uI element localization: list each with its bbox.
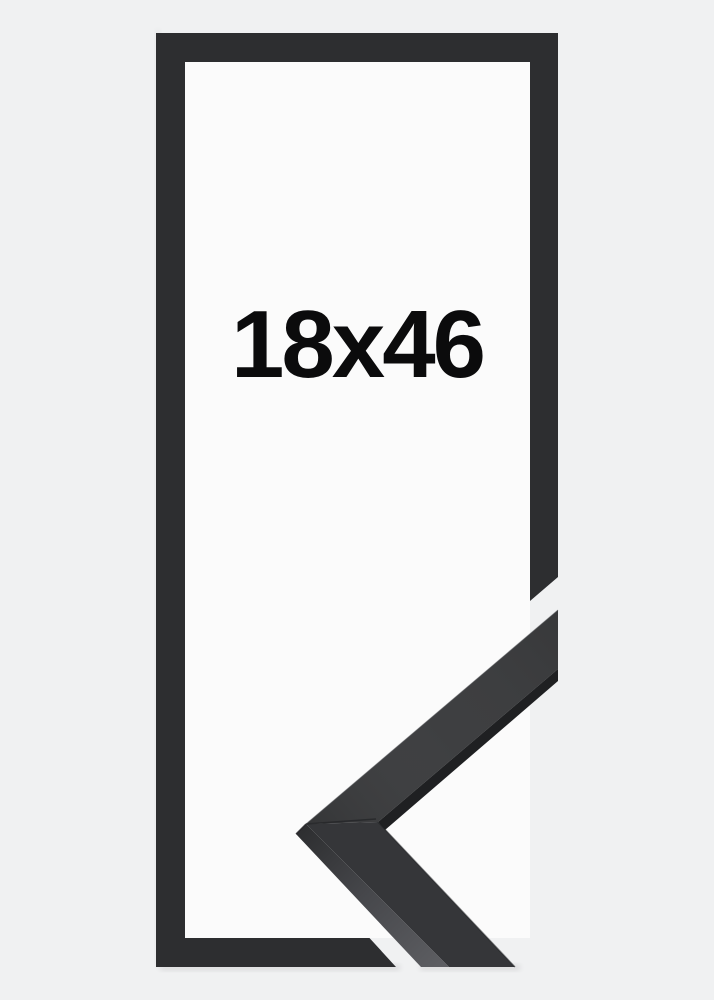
size-label: 18x46 <box>0 297 714 393</box>
frame-graphic <box>0 0 714 1000</box>
product-image: 18x46 <box>0 0 714 1000</box>
